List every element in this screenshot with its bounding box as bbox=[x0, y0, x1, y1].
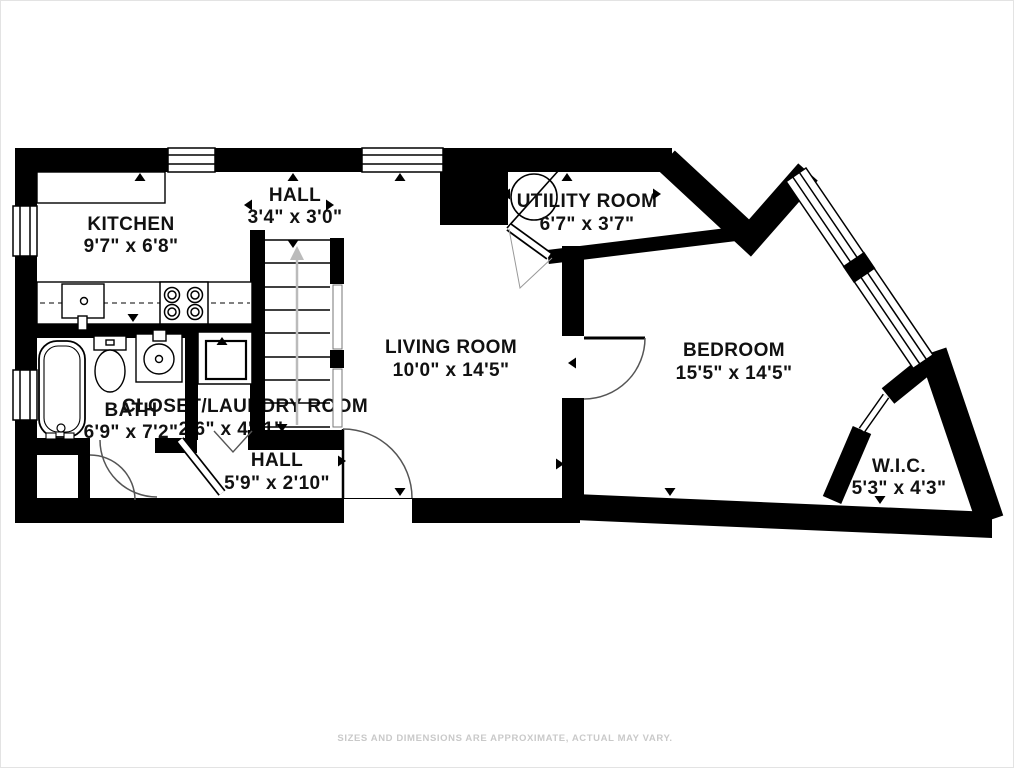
washer-icon bbox=[198, 332, 252, 384]
room-dimensions-utility-room: 6'7" x 3'7" bbox=[540, 214, 635, 235]
wall-utility-left-block bbox=[440, 148, 508, 225]
kitchen-counter-upper bbox=[37, 172, 165, 203]
room-label-closet-laundry: CLOSET/LAUNDRY ROOM bbox=[122, 396, 368, 417]
window-top-kitchen bbox=[168, 148, 215, 172]
window-left-kitchen bbox=[13, 206, 37, 256]
bathroom-sink-icon bbox=[136, 330, 182, 382]
stair-railing-lower bbox=[333, 369, 342, 427]
room-label-kitchen: KITCHEN bbox=[87, 214, 174, 235]
window-left-bath bbox=[13, 370, 37, 420]
floorplan-page: KITCHEN 9'7" x 6'8" HALL 3'4" x 3'0" UTI… bbox=[0, 0, 1014, 768]
room-dimensions-living-room: 10'0" x 14'5" bbox=[393, 360, 510, 381]
wall-bath-bottom bbox=[15, 438, 90, 455]
wall-living-bedroom-upper bbox=[562, 246, 584, 336]
wall-top bbox=[15, 148, 672, 172]
wall-bath-closet-divider bbox=[185, 330, 198, 440]
stair-railing-upper bbox=[333, 285, 342, 349]
page-border bbox=[1, 1, 1014, 768]
room-dimensions-bedroom: 15'5" x 14'5" bbox=[676, 363, 793, 384]
room-dimensions-hall-lower: 5'9" x 2'10" bbox=[224, 473, 330, 494]
room-label-wic: W.I.C. bbox=[872, 456, 926, 477]
disclaimer-text: SIZES AND DIMENSIONS ARE APPROXIMATE, AC… bbox=[337, 733, 672, 744]
room-label-bedroom: BEDROOM bbox=[683, 340, 785, 361]
wall-bottom-left bbox=[15, 498, 580, 523]
wall-stairs-right-upper bbox=[330, 238, 344, 284]
toilet-icon bbox=[94, 336, 126, 392]
room-label-hall-lower: HALL bbox=[251, 450, 303, 471]
room-dimensions-hall-upper: 3'4" x 3'0" bbox=[248, 207, 343, 228]
wall-stairs-right-mid bbox=[330, 350, 344, 368]
wall-living-bedroom-lower bbox=[562, 398, 584, 502]
wall-closet-bl-right bbox=[78, 455, 90, 500]
floorplan-drawing: KITCHEN 9'7" x 6'8" HALL 3'4" x 3'0" UTI… bbox=[0, 0, 1014, 768]
room-label-hall-upper: HALL bbox=[269, 185, 321, 206]
room-dimensions-wic: 5'3" x 4'3" bbox=[852, 478, 947, 499]
bathtub-icon bbox=[39, 341, 85, 439]
window-top-living bbox=[362, 148, 443, 172]
stove-icon bbox=[160, 282, 208, 324]
room-dimensions-kitchen: 9'7" x 6'8" bbox=[84, 236, 179, 257]
wall-understair bbox=[248, 430, 344, 450]
room-label-utility-room: UTILITY ROOM bbox=[517, 191, 658, 212]
room-label-living-room: LIVING ROOM bbox=[385, 337, 517, 358]
